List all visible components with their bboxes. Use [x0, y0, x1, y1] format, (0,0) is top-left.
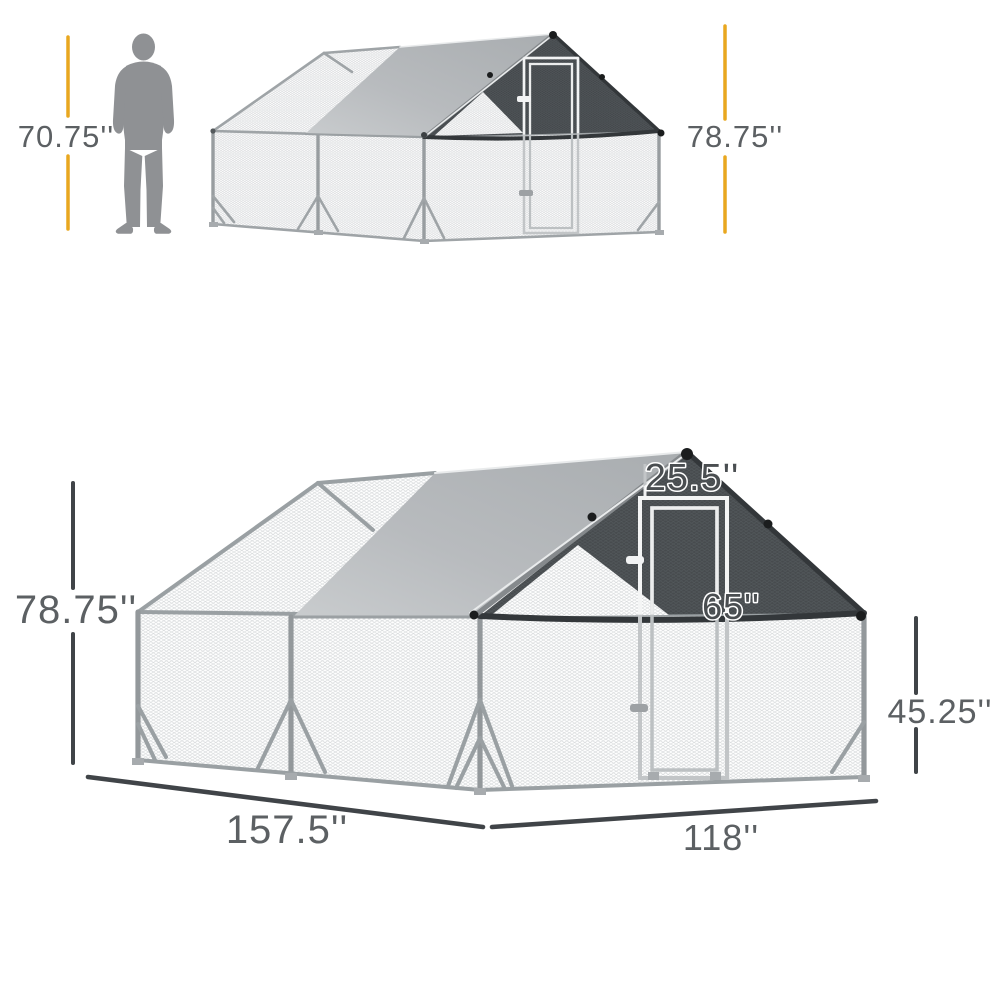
human-silhouette: [113, 34, 174, 234]
bottom-cage-door-latch: [626, 556, 644, 564]
label-top-cage-height: 78.75'': [687, 119, 783, 154]
label-human-height: 70.75'': [18, 119, 114, 154]
top-cage-front-wall: [424, 131, 659, 241]
label-depth: 157.5'': [226, 808, 348, 852]
label-width: 118'': [683, 817, 759, 858]
label-door-height: 65'': [702, 586, 760, 627]
top-figure: 70.75'': [18, 26, 783, 244]
bottom-figure: 78.75'' 45.25'' 157.5'' 118'' 25.5'' 65'…: [15, 448, 993, 858]
label-bottom-cage-height: 78.75'': [15, 588, 137, 632]
top-cage-door-latch: [517, 96, 531, 102]
diagram-svg: 70.75'': [0, 0, 1000, 1000]
bottom-cage-front-wall: [480, 613, 864, 790]
label-side-wall-height: 45.25'': [887, 693, 992, 731]
label-door-width: 25.5'': [645, 457, 739, 499]
top-cage-illustration: [209, 31, 665, 244]
product-dimension-diagram: 70.75'': [0, 0, 1000, 1000]
